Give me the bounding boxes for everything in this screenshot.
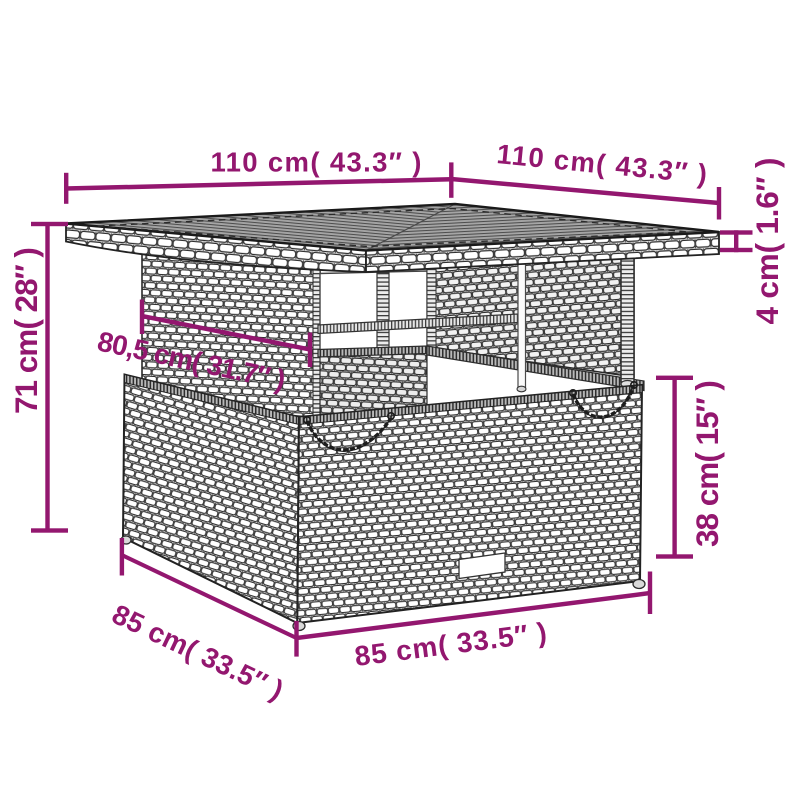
svg-text:4 cm( 1.6″ ): 4 cm( 1.6″ ) — [749, 158, 785, 325]
svg-text:110 cm( 43.3″ ): 110 cm( 43.3″ ) — [211, 146, 423, 177]
svg-text:71 cm( 28″ ): 71 cm( 28″ ) — [8, 248, 44, 414]
svg-text:38 cm( 15″ ): 38 cm( 15″ ) — [689, 381, 725, 547]
